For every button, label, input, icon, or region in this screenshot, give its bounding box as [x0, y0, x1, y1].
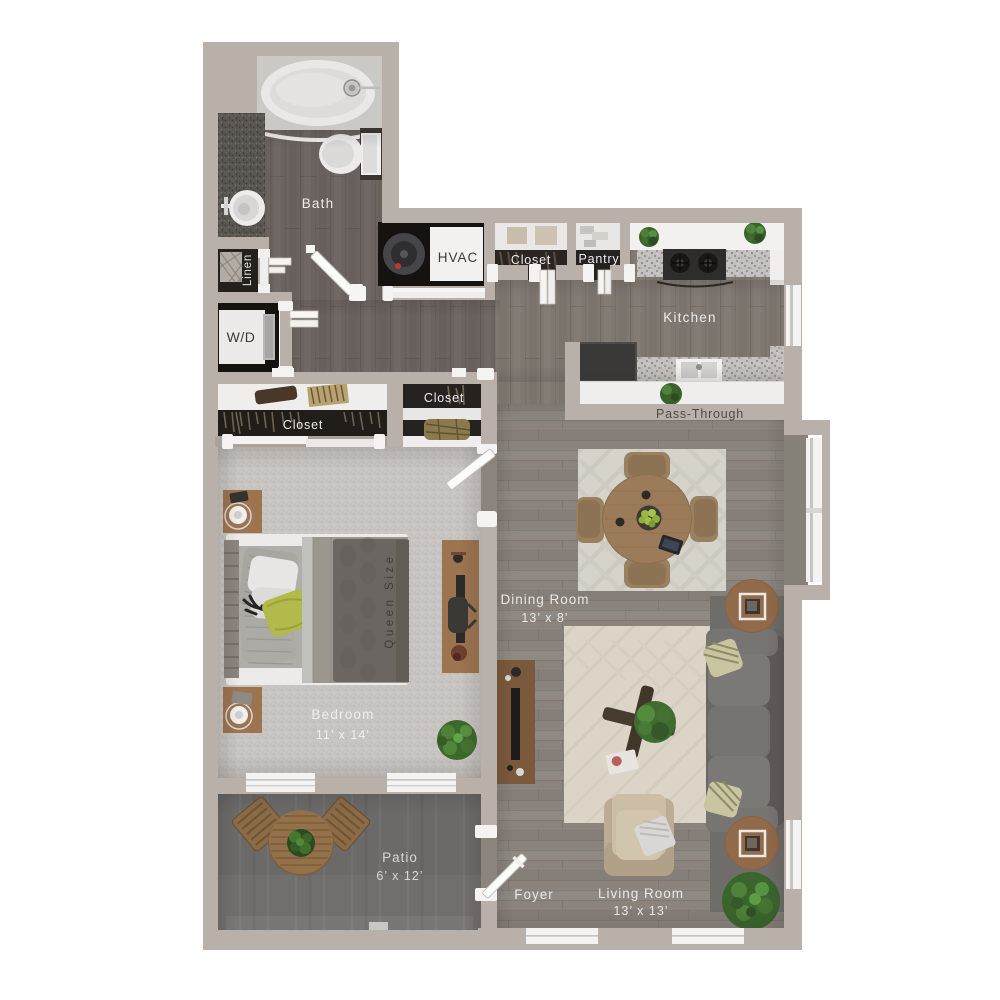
svg-text:6’ x 12’: 6’ x 12’ — [376, 869, 423, 883]
svg-text:11’ x 14’: 11’ x 14’ — [316, 728, 370, 742]
svg-text:Pantry: Pantry — [579, 252, 620, 266]
svg-text:13’ x 13’: 13’ x 13’ — [613, 904, 668, 918]
svg-text:Dining Room: Dining Room — [500, 592, 589, 607]
svg-text:Kitchen: Kitchen — [663, 310, 716, 325]
svg-text:Linen: Linen — [242, 254, 254, 286]
svg-text:Closet: Closet — [511, 253, 551, 267]
svg-text:Foyer: Foyer — [514, 887, 554, 902]
svg-text:W/D: W/D — [227, 329, 256, 345]
svg-text:13’ x 8’: 13’ x 8’ — [521, 611, 568, 625]
svg-text:Queen Size: Queen Size — [384, 553, 396, 648]
svg-text:Closet: Closet — [283, 418, 323, 432]
svg-text:Pass-Through: Pass-Through — [656, 407, 744, 421]
svg-text:Bedroom: Bedroom — [311, 707, 374, 722]
svg-text:Patio: Patio — [382, 850, 418, 865]
svg-text:Living Room: Living Room — [598, 886, 684, 901]
svg-text:HVAC: HVAC — [438, 250, 479, 265]
svg-text:Closet: Closet — [424, 391, 464, 405]
svg-text:Bath: Bath — [302, 196, 335, 211]
